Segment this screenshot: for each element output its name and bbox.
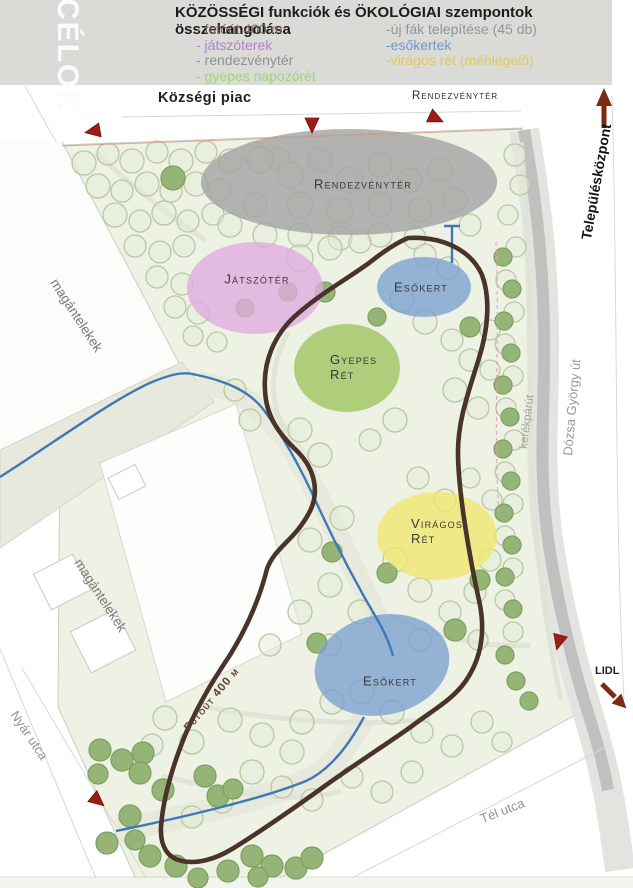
goals-side-label: CÉLOK (50, 0, 84, 113)
legend-community-functions: - futóút 400 m - játszóterek - rendezvén… (196, 22, 316, 84)
zone-flower-meadow-label: Virágos Rét (411, 517, 463, 546)
event-entrance-label: Rendezvénytér (412, 90, 498, 102)
bottom-street-strip (0, 878, 633, 888)
legend-item: -új fák telepítése (45 db) (386, 22, 537, 38)
legend-item: - gyepes napozórét (196, 69, 316, 85)
entrance-marker (84, 123, 101, 139)
zone-playground-ellipse (187, 242, 323, 334)
legend-item: -esőkertek (386, 38, 537, 54)
header-band: KÖZÖSSÉGI funkciók és ÖKOLÓGIAI szempont… (0, 0, 612, 85)
legend-item: -virágos rét (méhlegelő) (386, 53, 537, 69)
zone-event-label: Rendezvénytér (314, 177, 412, 192)
zone-playground-label: Játszótér (224, 272, 289, 287)
zone-raingarden-bottom-label: Esőkert (363, 674, 417, 689)
plan-drawing (0, 0, 633, 888)
market-label: Községi piac (158, 90, 251, 106)
main-road-band (524, 130, 620, 870)
zone-lawn-label: Gyepes Rét (330, 353, 377, 382)
legend-ecological-aspects: -új fák telepítése (45 db) -esőkertek -v… (386, 22, 537, 69)
legend-item: - futóút 400 m (196, 22, 316, 38)
lidl-arrow-icon (602, 684, 631, 713)
park-concept-plan: KÖZÖSSÉGI funkciók és ÖKOLÓGIAI szempont… (0, 0, 633, 888)
zone-raingarden-top-label: Esőkert (394, 280, 448, 295)
supermarket-label: LIDL (595, 665, 619, 677)
legend-item: - játszóterek (196, 38, 316, 54)
legend-item: - rendezvénytér (196, 53, 316, 69)
